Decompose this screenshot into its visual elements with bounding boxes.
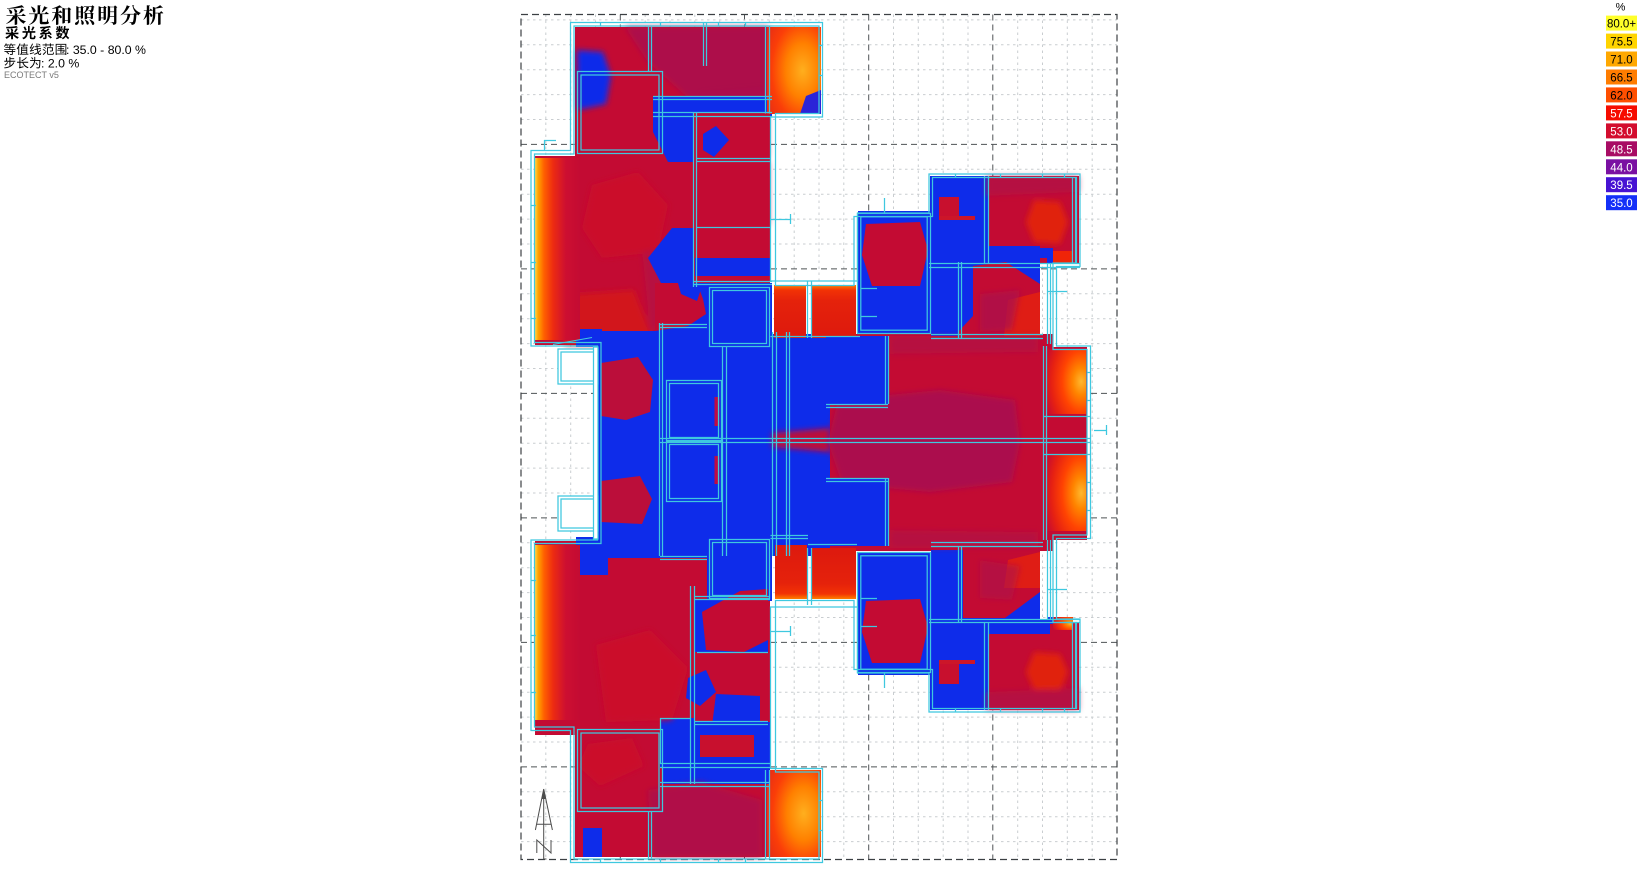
svg-text:66.5: 66.5 (1610, 73, 1632, 85)
svg-text:53.0: 53.0 (1610, 126, 1632, 138)
svg-text:80.0+: 80.0+ (1607, 19, 1636, 31)
svg-text:35.0: 35.0 (1610, 198, 1632, 210)
svg-text:71.0: 71.0 (1610, 55, 1632, 67)
svg-text:57.5: 57.5 (1610, 108, 1632, 120)
svg-text:44.0: 44.0 (1610, 162, 1632, 174)
svg-text:75.5: 75.5 (1610, 37, 1632, 49)
svg-text:: 2.0 %: : 2.0 % (41, 57, 79, 71)
svg-text:48.5: 48.5 (1610, 144, 1632, 156)
svg-text:ECOTECT v5: ECOTECT v5 (4, 70, 59, 80)
svg-text:%: % (1616, 2, 1626, 14)
svg-text:62.0: 62.0 (1610, 90, 1632, 102)
svg-text:39.5: 39.5 (1610, 180, 1632, 192)
svg-text:: 35.0 - 80.0 %: : 35.0 - 80.0 % (66, 43, 146, 57)
